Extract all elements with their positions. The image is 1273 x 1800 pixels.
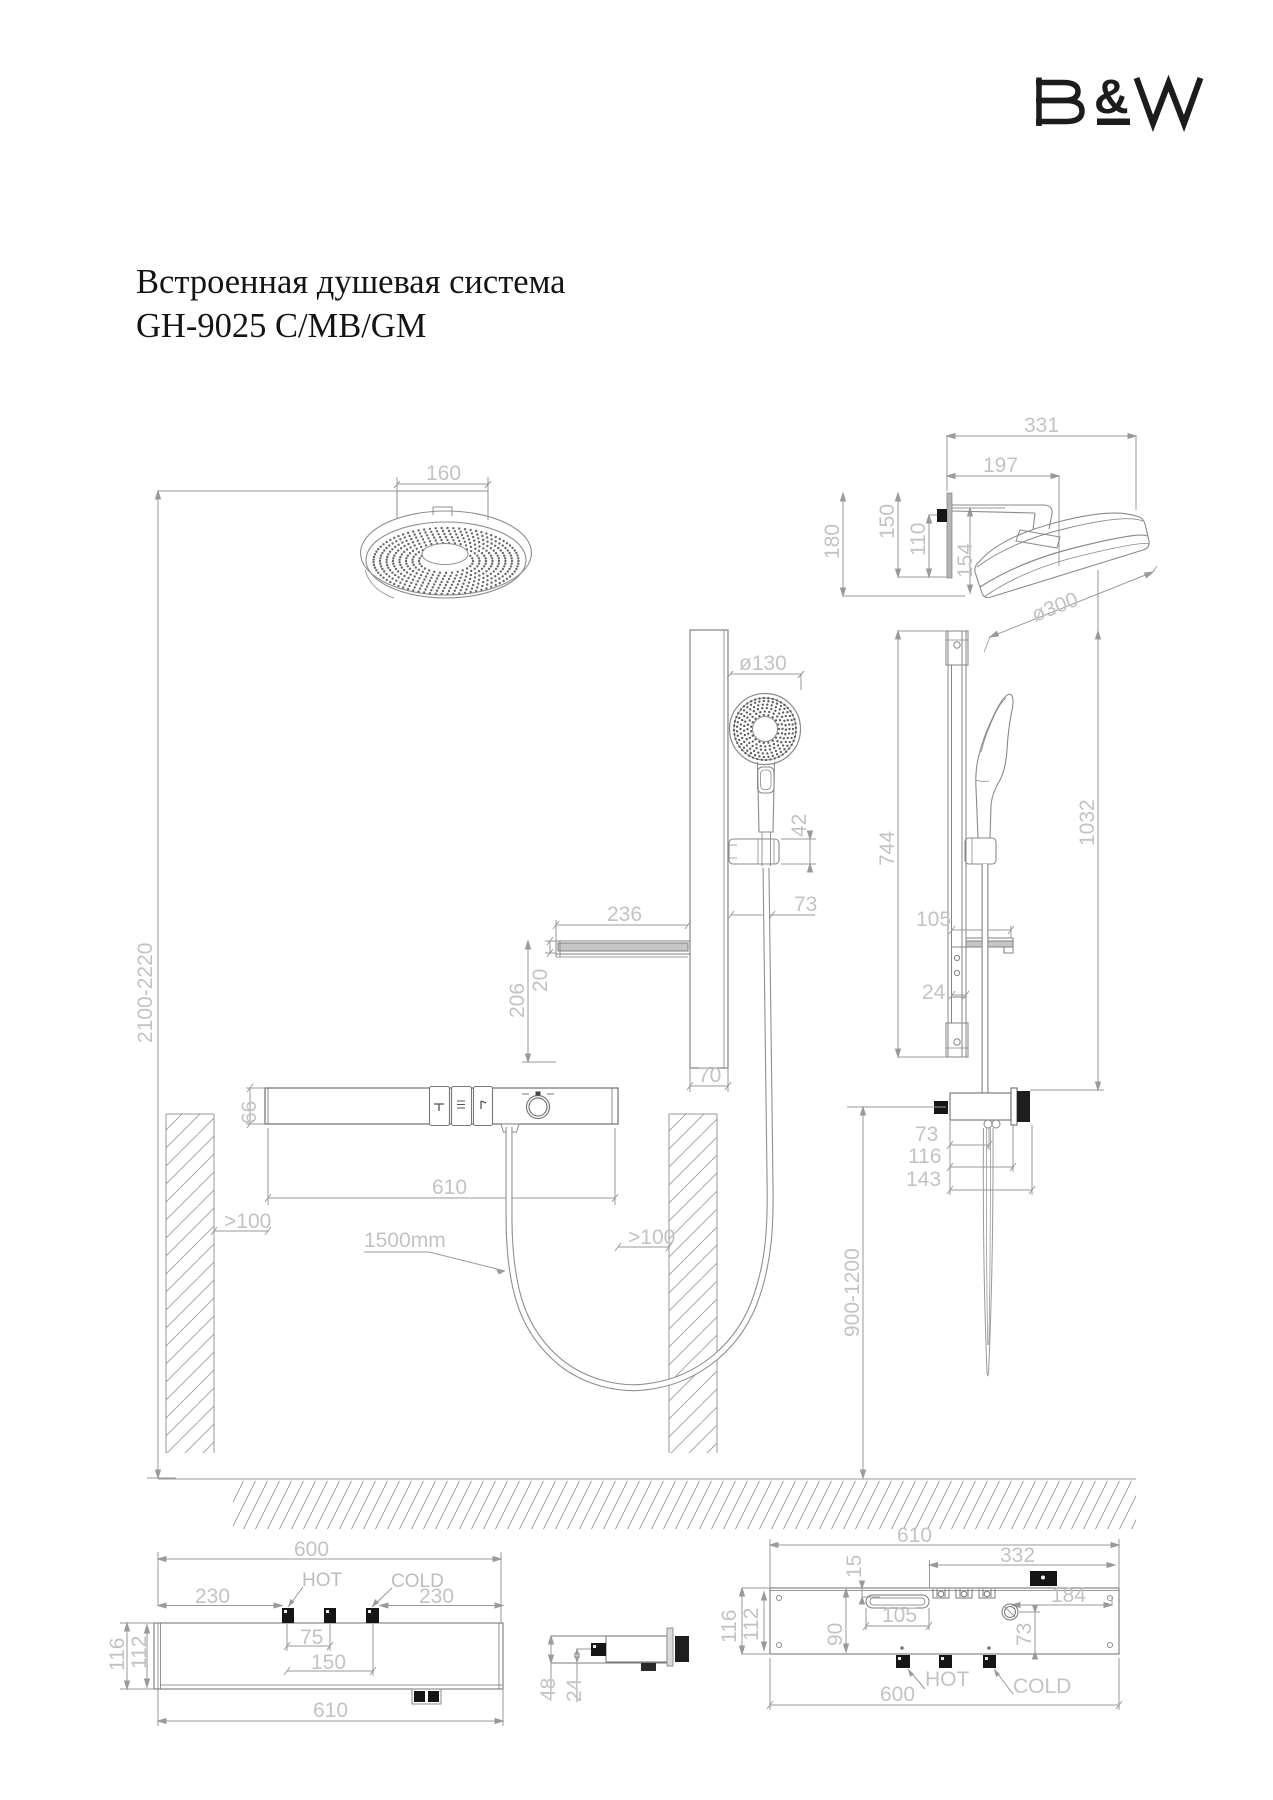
- svg-text:610: 610: [897, 1524, 932, 1547]
- svg-text:116: 116: [106, 1638, 129, 1671]
- svg-text:206: 206: [506, 983, 529, 1018]
- svg-text:2100-2220: 2100-2220: [134, 943, 157, 1043]
- svg-text:>100: >100: [224, 1210, 271, 1233]
- svg-text:75: 75: [300, 1626, 323, 1649]
- svg-text:150: 150: [311, 1651, 346, 1674]
- svg-text:160: 160: [426, 462, 461, 485]
- svg-text:230: 230: [195, 1585, 230, 1608]
- svg-text:105: 105: [882, 1604, 917, 1627]
- svg-text:184: 184: [1051, 1584, 1086, 1607]
- svg-text:610: 610: [313, 1699, 348, 1722]
- svg-text:HOT: HOT: [925, 1668, 970, 1691]
- svg-text:ø130: ø130: [739, 652, 787, 675]
- svg-text:600: 600: [880, 1683, 915, 1706]
- svg-text:143: 143: [906, 1168, 941, 1191]
- svg-text:112: 112: [128, 1636, 151, 1669]
- svg-text:20: 20: [529, 969, 552, 992]
- svg-text:&: &: [1094, 71, 1129, 124]
- svg-text:116: 116: [908, 1145, 941, 1168]
- svg-text:15: 15: [843, 1555, 866, 1578]
- svg-text:900-1200: 900-1200: [841, 1248, 864, 1337]
- svg-text:331: 331: [1024, 414, 1059, 437]
- svg-text:HOT: HOT: [302, 1570, 343, 1591]
- svg-text:150: 150: [876, 504, 899, 539]
- svg-text:116: 116: [718, 1610, 741, 1643]
- svg-text:105: 105: [916, 908, 951, 931]
- svg-text:48: 48: [537, 1678, 560, 1701]
- svg-text:1500mm: 1500mm: [364, 1229, 446, 1252]
- svg-text:1032: 1032: [1076, 799, 1099, 846]
- svg-text:236: 236: [607, 903, 642, 926]
- svg-text:42: 42: [788, 814, 811, 837]
- svg-text:GH-9025 C/MB/GM: GH-9025 C/MB/GM: [136, 307, 426, 345]
- svg-text:90: 90: [824, 1623, 847, 1646]
- svg-text:610: 610: [432, 1176, 467, 1199]
- svg-text:197: 197: [983, 454, 1018, 477]
- svg-text:744: 744: [876, 831, 899, 866]
- svg-text:110: 110: [907, 523, 930, 556]
- svg-text:73: 73: [794, 893, 817, 916]
- svg-text:73: 73: [1013, 1623, 1036, 1646]
- svg-text:230: 230: [419, 1585, 454, 1608]
- svg-text:>100: >100: [628, 1226, 675, 1249]
- svg-text:66: 66: [238, 1101, 261, 1124]
- svg-text:180: 180: [821, 524, 844, 559]
- svg-text:24: 24: [922, 981, 946, 1004]
- svg-text:24: 24: [563, 1678, 586, 1702]
- svg-text:154: 154: [954, 543, 977, 578]
- svg-text:112: 112: [740, 1608, 763, 1641]
- svg-text:332: 332: [1000, 1544, 1035, 1567]
- svg-text:73: 73: [915, 1123, 938, 1146]
- svg-text:COLD: COLD: [1013, 1675, 1071, 1698]
- svg-text:600: 600: [294, 1538, 329, 1561]
- svg-text:70: 70: [698, 1064, 721, 1087]
- svg-text:Встроенная душевая система: Встроенная душевая система: [136, 263, 566, 301]
